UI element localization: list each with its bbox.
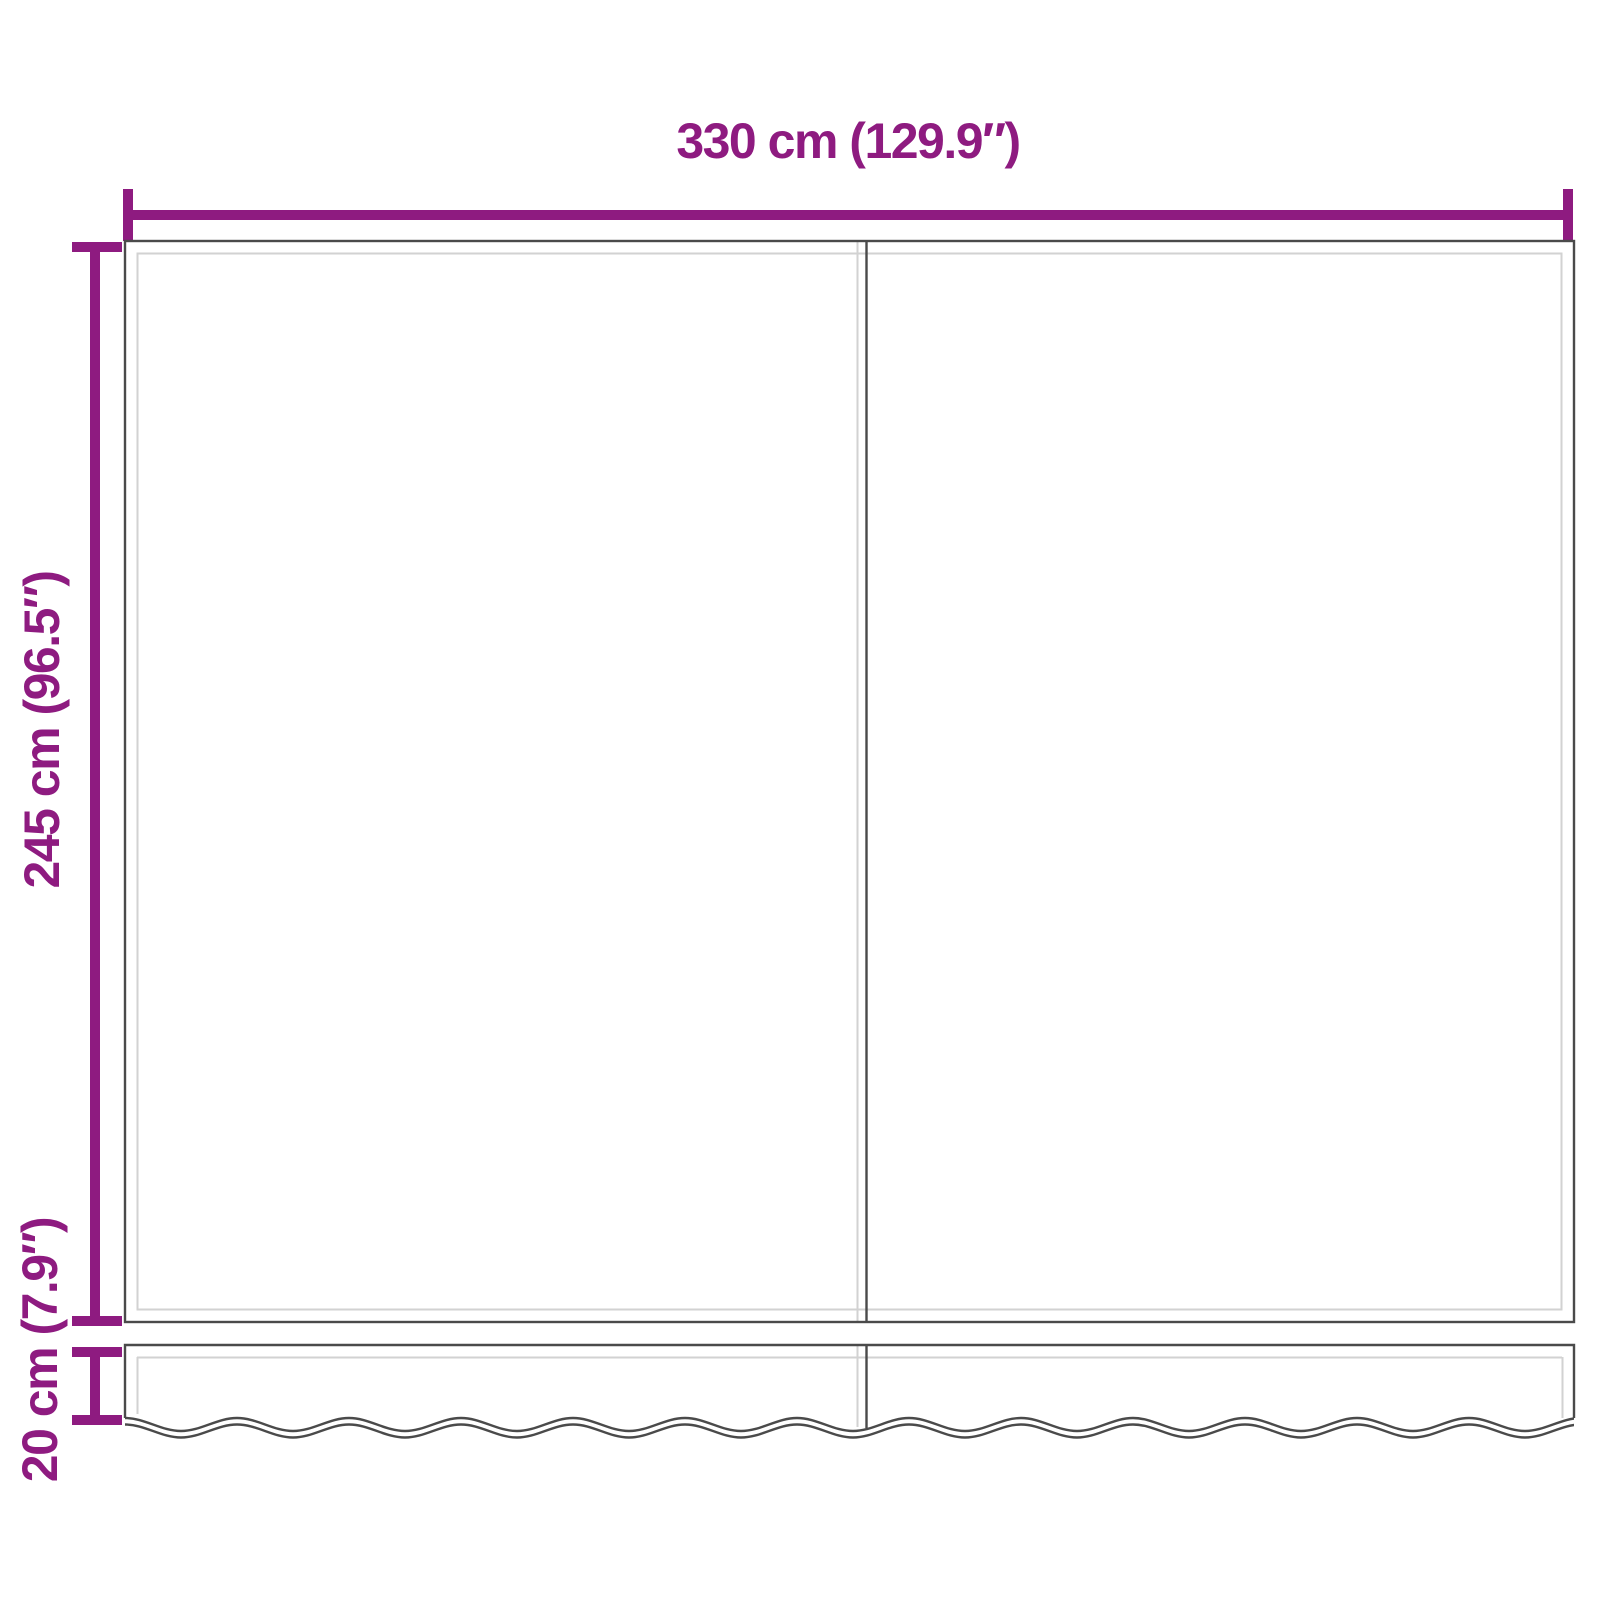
width-dimension-line — [123, 189, 1573, 241]
height-dimension-label: 245 cm (96.5″) — [13, 571, 71, 888]
valance-dimension-bar — [90, 1347, 100, 1425]
valance — [125, 1345, 1581, 1438]
width-dimension-label: 330 cm (129.9″) — [676, 112, 1019, 170]
height-dimension-line — [72, 242, 122, 1326]
width-dimension-bar — [123, 210, 1573, 220]
valance-dimension-top-tick — [72, 1347, 122, 1357]
valance-dimension-line — [72, 1347, 122, 1425]
height-dimension-bottom-tick — [72, 1316, 122, 1326]
width-dimension-left-tick — [123, 189, 133, 241]
valance-dimension-bottom-tick — [72, 1415, 122, 1425]
width-dimension-right-tick — [1563, 189, 1573, 241]
height-dimension-top-tick — [72, 242, 122, 252]
awning-dimension-diagram: 330 cm (129.9″) 245 cm (96.5″) 20 cm (7.… — [0, 0, 1600, 1600]
fabric-outline — [125, 241, 1574, 1322]
height-dimension-bar — [90, 242, 100, 1326]
fabric-inner-hem-line — [138, 254, 1562, 1310]
diagram-linework — [0, 0, 1600, 1600]
fabric-panel — [125, 241, 1574, 1322]
valance-outline — [125, 1345, 1574, 1418]
valance-dimension-label: 20 cm (7.9″) — [11, 1218, 69, 1482]
